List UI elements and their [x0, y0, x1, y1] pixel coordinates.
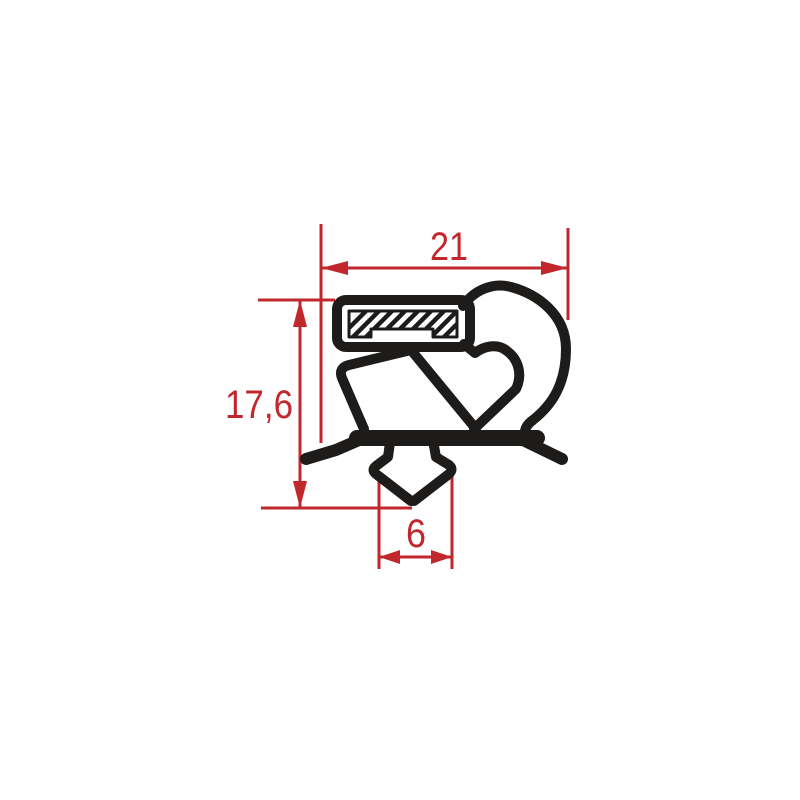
arrowhead-dart-width-right: [431, 550, 452, 564]
dimension-value-dart-width: 6: [406, 512, 426, 556]
arrowhead-left-height-up: [293, 300, 307, 327]
left-wing: [306, 437, 366, 459]
dimension-value-top-width: 21: [430, 225, 468, 269]
arrowhead-left-height-down: [293, 481, 307, 508]
inner-lobe-wall: [464, 344, 519, 429]
technical-drawing-page: 21 17,6 6: [0, 0, 800, 800]
arrowhead-dart-width-left: [379, 550, 400, 564]
right-wing: [525, 441, 562, 459]
dimension-value-left-height: 17,6: [225, 383, 293, 427]
bellows-wall: [341, 350, 476, 429]
arrowhead-top-width-right: [541, 261, 568, 275]
gasket-profile: [306, 286, 566, 501]
gasket-profile-drawing: 21 17,6 6: [0, 0, 800, 800]
arrowhead-top-width-left: [321, 261, 348, 275]
